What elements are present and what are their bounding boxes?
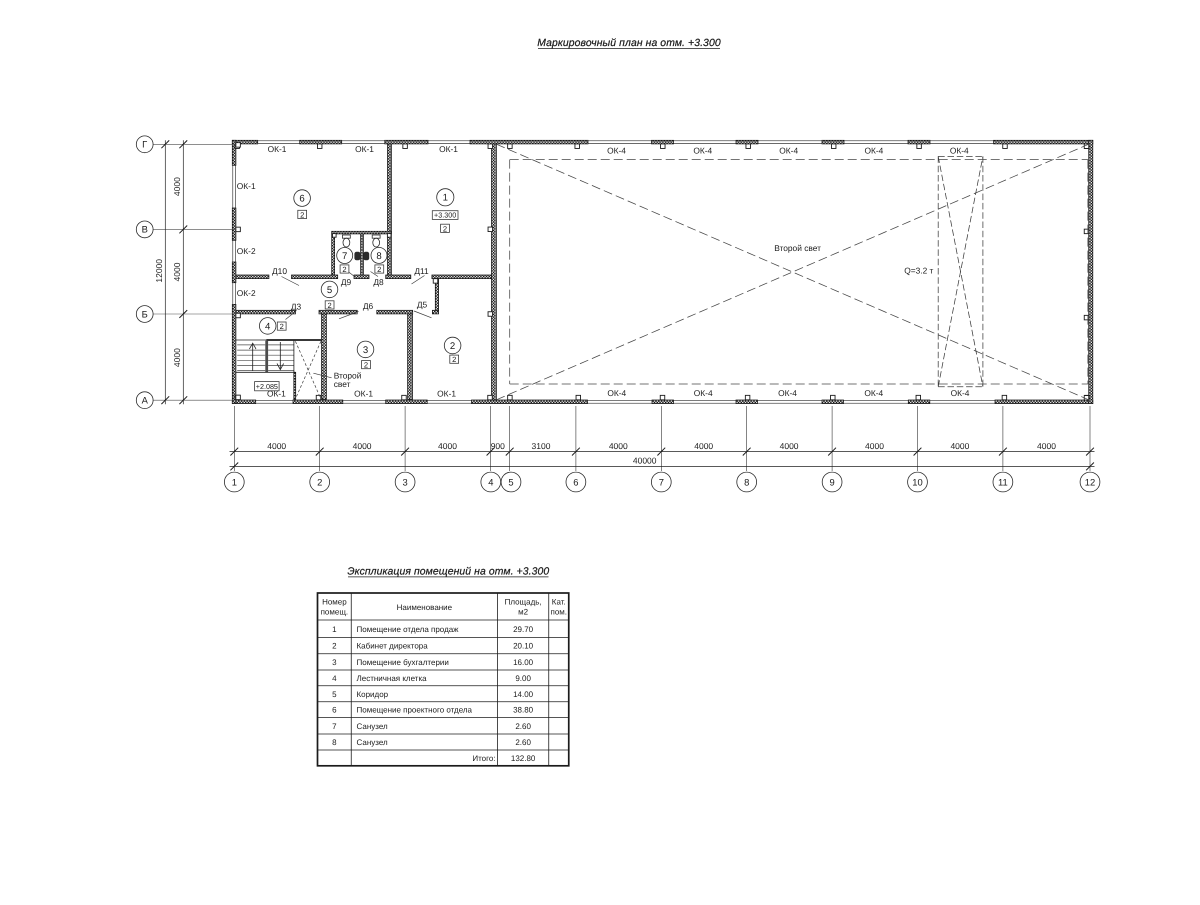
svg-text:4000: 4000 [172, 348, 182, 367]
svg-text:4000: 4000 [609, 441, 628, 451]
svg-text:ОК-4: ОК-4 [779, 146, 798, 156]
svg-text:9.00: 9.00 [515, 674, 531, 683]
svg-text:свет: свет [334, 379, 351, 389]
svg-text:м2: м2 [518, 607, 529, 616]
svg-text:8: 8 [744, 476, 749, 487]
svg-text:8: 8 [376, 251, 381, 262]
svg-text:4000: 4000 [694, 441, 713, 451]
svg-text:2: 2 [317, 476, 322, 487]
svg-text:16.00: 16.00 [513, 658, 534, 667]
svg-text:Кабинет директора: Кабинет директора [357, 642, 429, 651]
svg-text:4: 4 [332, 674, 337, 683]
svg-text:Б: Б [142, 308, 148, 319]
svg-text:4000: 4000 [353, 441, 372, 451]
svg-text:3100: 3100 [532, 441, 551, 451]
svg-text:Второй свет: Второй свет [774, 243, 821, 253]
svg-text:пом.: пом. [550, 607, 567, 616]
svg-text:ОК-2: ОК-2 [237, 246, 256, 256]
svg-text:Помещение проектного отдела: Помещение проектного отдела [357, 706, 473, 715]
svg-text:ОК-1: ОК-1 [237, 181, 256, 191]
svg-text:11: 11 [998, 476, 1008, 487]
svg-text:Д10: Д10 [272, 266, 287, 276]
svg-text:5: 5 [332, 690, 337, 699]
svg-text:10: 10 [912, 476, 922, 487]
svg-text:12000: 12000 [154, 259, 164, 283]
svg-text:4: 4 [488, 476, 493, 487]
svg-text:Площадь,: Площадь, [505, 597, 542, 606]
svg-text:Помещение бухгалтерии: Помещение бухгалтерии [357, 658, 449, 667]
svg-text:ОК-1: ОК-1 [354, 389, 373, 399]
svg-text:6: 6 [299, 194, 304, 205]
svg-text:Кат.: Кат. [552, 597, 566, 606]
svg-text:ОК-1: ОК-1 [437, 389, 456, 399]
svg-text:4000: 4000 [950, 441, 969, 451]
svg-text:9: 9 [829, 476, 834, 487]
svg-text:4000: 4000 [172, 262, 182, 281]
svg-text:2: 2 [300, 210, 304, 219]
svg-text:1: 1 [443, 193, 448, 204]
svg-text:ОК-4: ОК-4 [607, 146, 626, 156]
svg-text:Наименование: Наименование [397, 603, 453, 612]
svg-text:2: 2 [452, 355, 456, 364]
svg-text:7: 7 [332, 722, 337, 731]
svg-text:помещ.: помещ. [321, 607, 349, 616]
svg-text:Д6: Д6 [363, 301, 374, 311]
svg-text:2.60: 2.60 [515, 722, 531, 731]
svg-text:14.00: 14.00 [513, 690, 534, 699]
svg-text:1: 1 [232, 476, 237, 487]
svg-text:ОК-1: ОК-1 [439, 144, 458, 154]
svg-text:ОК-4: ОК-4 [950, 146, 969, 156]
svg-text:4000: 4000 [438, 441, 457, 451]
svg-text:900: 900 [491, 441, 505, 451]
svg-text:1: 1 [332, 625, 337, 634]
svg-text:5: 5 [508, 476, 513, 487]
svg-text:8: 8 [332, 738, 337, 747]
svg-text:Лестничная клетка: Лестничная клетка [357, 674, 428, 683]
svg-text:ОК-4: ОК-4 [694, 388, 713, 398]
svg-text:Q=3.2 т: Q=3.2 т [904, 265, 933, 275]
svg-text:Номер: Номер [322, 597, 347, 606]
svg-text:ОК-4: ОК-4 [607, 388, 626, 398]
svg-text:132.80: 132.80 [511, 754, 536, 763]
svg-text:4: 4 [265, 321, 271, 332]
svg-text:5: 5 [327, 285, 332, 296]
svg-text:ОК-1: ОК-1 [267, 389, 286, 399]
svg-text:Итого:: Итого: [472, 754, 495, 763]
svg-text:ОК-4: ОК-4 [951, 388, 970, 398]
svg-text:4000: 4000 [1037, 441, 1056, 451]
svg-text:А: А [142, 395, 149, 406]
svg-text:Санузел: Санузел [357, 738, 388, 747]
svg-text:2: 2 [450, 341, 455, 352]
svg-text:Экспликация помещений на отм.: Экспликация помещений на отм. +3.300 [347, 567, 549, 578]
svg-text:2: 2 [280, 322, 284, 331]
svg-text:ОК-4: ОК-4 [864, 146, 883, 156]
svg-text:Санузел: Санузел [357, 722, 388, 731]
svg-text:2.60: 2.60 [515, 738, 531, 747]
svg-text:Д8: Д8 [373, 277, 384, 287]
svg-text:Коридор: Коридор [357, 690, 389, 699]
svg-text:ОК-4: ОК-4 [693, 146, 712, 156]
svg-text:7: 7 [342, 251, 347, 262]
svg-text:2: 2 [364, 361, 368, 370]
svg-text:38.80: 38.80 [513, 706, 534, 715]
svg-text:29.70: 29.70 [513, 625, 534, 634]
svg-text:2: 2 [332, 642, 337, 651]
svg-text:6: 6 [332, 706, 337, 715]
svg-text:+3.300: +3.300 [434, 211, 456, 220]
svg-text:4000: 4000 [780, 441, 799, 451]
svg-text:20.10: 20.10 [513, 642, 534, 651]
svg-text:4000: 4000 [172, 177, 182, 196]
svg-text:12: 12 [1085, 476, 1095, 487]
svg-text:Г: Г [142, 139, 147, 150]
svg-text:3: 3 [363, 345, 368, 356]
svg-text:ОК-4: ОК-4 [778, 388, 797, 398]
svg-text:40000: 40000 [633, 456, 657, 466]
svg-text:4000: 4000 [267, 441, 286, 451]
svg-text:Д3: Д3 [291, 301, 302, 311]
svg-text:ОК-1: ОК-1 [355, 144, 374, 154]
svg-text:6: 6 [573, 476, 578, 487]
svg-text:7: 7 [659, 476, 664, 487]
svg-text:Маркировочный план на отм. +3.: Маркировочный план на отм. +3.300 [537, 38, 721, 49]
svg-text:Помещение отдела продаж: Помещение отдела продаж [357, 625, 460, 634]
svg-text:3: 3 [332, 658, 337, 667]
svg-text:2: 2 [377, 265, 381, 274]
svg-text:Д9: Д9 [341, 277, 352, 287]
svg-text:Д11: Д11 [414, 266, 429, 276]
svg-text:3: 3 [402, 476, 407, 487]
svg-text:ОК-2: ОК-2 [237, 288, 256, 298]
svg-text:2: 2 [443, 224, 447, 233]
svg-text:ОК-1: ОК-1 [268, 144, 287, 154]
svg-text:4000: 4000 [865, 441, 884, 451]
svg-text:ОК-4: ОК-4 [864, 388, 883, 398]
svg-text:2: 2 [342, 265, 346, 274]
svg-text:2: 2 [327, 301, 331, 310]
svg-text:В: В [142, 224, 148, 235]
svg-text:Д5: Д5 [417, 299, 428, 309]
